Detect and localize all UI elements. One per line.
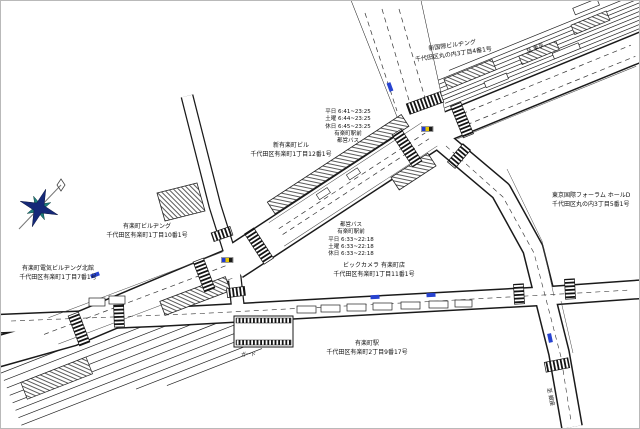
crosswalk bbox=[513, 284, 524, 304]
bus-bay-box bbox=[373, 303, 392, 310]
crosswalk bbox=[564, 279, 575, 299]
map-page: 新国際ビルヂング 千代田区丸の内3丁目4番1号 東京国際フォーラム ホールD 千… bbox=[0, 0, 640, 429]
roadside-box bbox=[89, 298, 105, 306]
bus-stop-name: 有楽町駅前 bbox=[328, 229, 374, 236]
building-name: 有楽町電気ビルヂング北館 bbox=[19, 265, 96, 274]
building-block-hatch bbox=[157, 183, 205, 221]
bus-stop-schedule-north: 平日 6:41~23:25 土曜 6:44~23:25 休日 6:45~23:2… bbox=[325, 109, 371, 146]
building-name: 有楽町駅 bbox=[326, 340, 407, 349]
bus-stop-marker-icon bbox=[426, 293, 435, 297]
railway-guard-box bbox=[234, 316, 293, 347]
bus-bay-box bbox=[429, 301, 448, 308]
road-southeast bbox=[437, 137, 572, 427]
bus-bay-box bbox=[401, 302, 420, 309]
building-address: 千代田区有楽町1丁目11番1号 bbox=[333, 271, 414, 280]
schedule-line: 土曜 6:44~23:25 bbox=[325, 116, 371, 123]
compass-rose-icon bbox=[19, 179, 65, 229]
crosswalk bbox=[114, 305, 125, 327]
roadside-box bbox=[109, 296, 125, 304]
station-structure bbox=[484, 73, 508, 88]
street-map-canvas bbox=[1, 1, 640, 429]
crosswalk bbox=[227, 286, 246, 297]
building-label-yurakucho-building: 有楽町ビルヂング 千代田区有楽町1丁目10番1号 bbox=[106, 223, 187, 240]
bus-bay-box bbox=[347, 304, 366, 311]
building-label-yurakucho-station: 有楽町駅 千代田区有楽町2丁目9番17号 bbox=[326, 340, 407, 357]
building-label-bic-camera: ビックカメラ 有楽町店 千代田区有楽町1丁目11番1号 bbox=[333, 262, 414, 279]
schedule-line: 休日 6:33~22:18 bbox=[328, 251, 374, 258]
building-address: 千代田区有楽町1丁目12番1号 bbox=[250, 151, 331, 160]
building-name: ビックカメラ 有楽町店 bbox=[333, 262, 414, 271]
bus-stop-schedule-south: 都営バス 有楽町駅前 平日 6:33~22:18 土曜 6:33~22:18 休… bbox=[328, 222, 374, 259]
schedule-line: 平日 6:33~22:18 bbox=[328, 237, 374, 244]
building-name: 新有楽町ビル bbox=[250, 142, 331, 151]
building-name: 有楽町ビルヂング bbox=[106, 223, 187, 232]
building-address: 千代田区有楽町1丁目7番1号 bbox=[19, 274, 96, 283]
building-label-tokyo-forum: 東京国際フォーラム ホールD 千代田区丸の内3丁目5番1号 bbox=[552, 192, 630, 209]
building-label-denki-north: 有楽町電気ビルヂング北館 千代田区有楽町1丁目7番1号 bbox=[19, 265, 96, 282]
schedule-line: 休日 6:45~23:25 bbox=[325, 124, 371, 131]
building-address: 千代田区丸の内3丁目5番1号 bbox=[552, 201, 630, 210]
bus-bay-box bbox=[297, 306, 316, 313]
bus-operator: 都営バス bbox=[325, 138, 371, 145]
guard-label: ガード bbox=[241, 351, 256, 358]
building-address: 千代田区有楽町1丁目10番1号 bbox=[106, 232, 187, 241]
building-name: 東京国際フォーラム ホールD bbox=[552, 192, 630, 201]
bus-bay-box bbox=[321, 305, 340, 312]
bus-stop-marker-icon bbox=[370, 295, 379, 299]
building-address: 千代田区有楽町2丁目9番17号 bbox=[326, 349, 407, 358]
building-label-shin-yurakucho: 新有楽町ビル 千代田区有楽町1丁目12番1号 bbox=[250, 142, 331, 159]
bus-bay-box bbox=[455, 300, 472, 307]
station-structure bbox=[573, 1, 600, 15]
